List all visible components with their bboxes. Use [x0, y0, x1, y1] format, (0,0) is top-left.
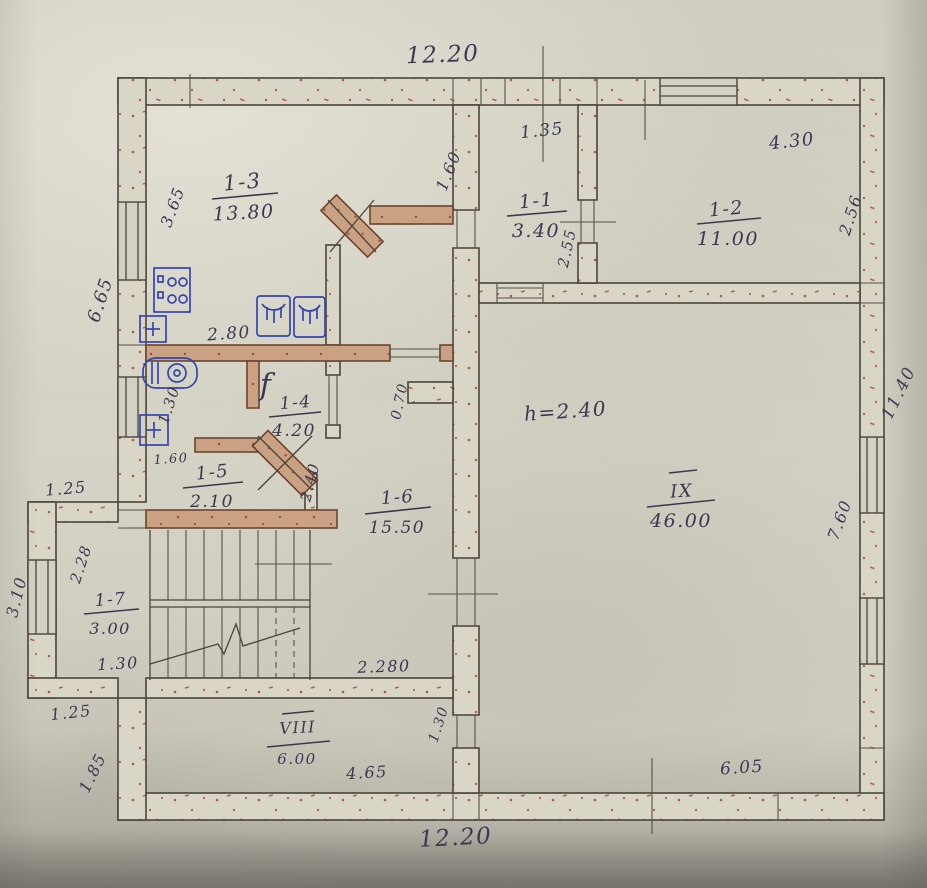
dim-1-30-hall: 1.30 — [426, 704, 453, 744]
floor-plan-drawing: f 1-3 13.80 1-1 3.40 1-2 11.00 1-4 4.20 … — [0, 0, 927, 888]
room-number: 1-4 — [279, 392, 312, 414]
dim-2-80: 2.80 — [205, 322, 251, 345]
room-area: 3.00 — [89, 619, 131, 638]
room-number: 1-5 — [195, 460, 231, 484]
room-label-1-4: 1-4 4.20 — [269, 392, 321, 441]
room-area: 3.40 — [512, 220, 560, 242]
room-number: 1-1 — [518, 189, 555, 214]
faucet-icon: f — [258, 368, 276, 403]
room-area: 6.00 — [277, 750, 316, 768]
floor-plan-photo: f 1-3 13.80 1-1 3.40 1-2 11.00 1-4 4.20 … — [0, 0, 927, 888]
room-number: VIII — [279, 717, 316, 738]
door-central-wall-middle — [453, 558, 479, 626]
wall-above-room-ix — [479, 283, 860, 303]
room-label-1-1: 1-1 3.40 — [507, 189, 567, 242]
dim-bottom-width: 12.20 — [418, 823, 493, 853]
partition-above-stairs — [146, 510, 337, 528]
room-label-1-5: 1-5 2.10 — [183, 460, 243, 512]
wall-1-1-1-2-upper — [578, 105, 597, 200]
room-number: IX — [669, 480, 694, 502]
room-area: 46.00 — [649, 510, 712, 532]
dim-1-35: 1.35 — [519, 119, 565, 143]
stair-treads-lower — [168, 607, 294, 678]
window-top-room-1-2 — [660, 78, 737, 105]
partition-wc-stub — [247, 361, 259, 408]
room-label-1-2: 1-2 11.00 — [697, 197, 761, 250]
wall-1-4-jamb-bottom — [326, 425, 340, 438]
room-label-1-7: 1-7 3.00 — [84, 589, 139, 638]
dim-4-65: 4.65 — [345, 762, 389, 783]
dim-1-60-b: 1.60 — [153, 451, 189, 468]
dim-1-30-stairs: 1.30 — [97, 653, 140, 674]
partition-kitchen-flue-link — [370, 206, 453, 224]
wall-1-4-jamb-top — [326, 361, 340, 375]
dim-1-25-b: 1.25 — [49, 701, 92, 724]
window-right-ix-lower — [860, 598, 884, 664]
room-number: 1-3 — [222, 168, 262, 195]
window-right-ix-upper — [860, 437, 884, 513]
room-area: 15.50 — [369, 518, 425, 538]
room-area: 11.00 — [697, 228, 759, 250]
dim-1-25-a: 1.25 — [44, 477, 87, 500]
wall-stub-0-70 — [408, 382, 453, 403]
room-area: 2.10 — [189, 492, 234, 512]
room-number: 1-7 — [94, 589, 127, 611]
dim-1-30-wc: 1.30 — [154, 383, 183, 426]
ceiling-height-note: h=2.40 — [523, 396, 608, 426]
dim-6-05: 6.05 — [719, 756, 764, 779]
door-central-wall-upper — [453, 210, 479, 248]
central-wall-seg-b — [453, 248, 479, 558]
bottom-wall — [118, 793, 884, 820]
stove-icon — [154, 268, 190, 312]
window-porch — [28, 560, 56, 634]
dim-7-60: 7.60 — [823, 497, 855, 543]
left-wall-lower — [118, 698, 146, 820]
dim-top-width: 12.20 — [406, 41, 480, 70]
central-wall-seg-d — [453, 748, 479, 793]
partition-1-4-1-5 — [195, 438, 258, 452]
washtub-icon — [294, 297, 325, 337]
dim-6-65: 6.65 — [83, 275, 117, 325]
porch-bottom-wall — [28, 678, 118, 698]
dim-3-65: 3.65 — [156, 184, 188, 230]
stair-treads-upper — [168, 530, 294, 600]
wall-1-1-1-2-lower — [578, 243, 597, 283]
dim-1-85: 1.85 — [75, 750, 110, 796]
door-corridor-pocket — [390, 345, 440, 361]
dim-4-30: 4.30 — [767, 129, 816, 155]
room-number: 1-6 — [380, 486, 415, 509]
dim-3-10: 3.10 — [2, 574, 31, 619]
door-central-wall-lower — [453, 715, 479, 748]
toilet-icon — [143, 358, 197, 388]
room-label-viii: VIII 6.00 — [267, 711, 330, 768]
washtub-icon — [257, 296, 290, 336]
room-label-1-3: 1-3 13.80 — [212, 168, 278, 225]
room-number: 1-2 — [708, 197, 745, 222]
wall-above-viii — [146, 678, 453, 698]
door-room-1-4 — [326, 375, 340, 425]
room-label-1-6: 1-6 15.50 — [365, 486, 431, 538]
window-left-kitchen — [118, 202, 146, 280]
room-area: 4.20 — [271, 421, 316, 441]
wall-kitchen-corridor — [326, 245, 340, 345]
left-wall-upper — [118, 78, 146, 502]
partition-kitchen-south-stub — [440, 345, 453, 361]
room-area: 13.80 — [212, 200, 275, 225]
window-left-wc — [118, 377, 146, 437]
staircase — [150, 530, 332, 680]
room-label-ix: IX 46.00 — [647, 470, 715, 532]
dim-2-28: 2.28 — [66, 542, 96, 586]
top-wall — [118, 78, 884, 105]
stair-direction-arrow — [150, 624, 300, 664]
dim-2-280: 2.280 — [356, 656, 411, 677]
central-wall-seg-c — [453, 626, 479, 715]
